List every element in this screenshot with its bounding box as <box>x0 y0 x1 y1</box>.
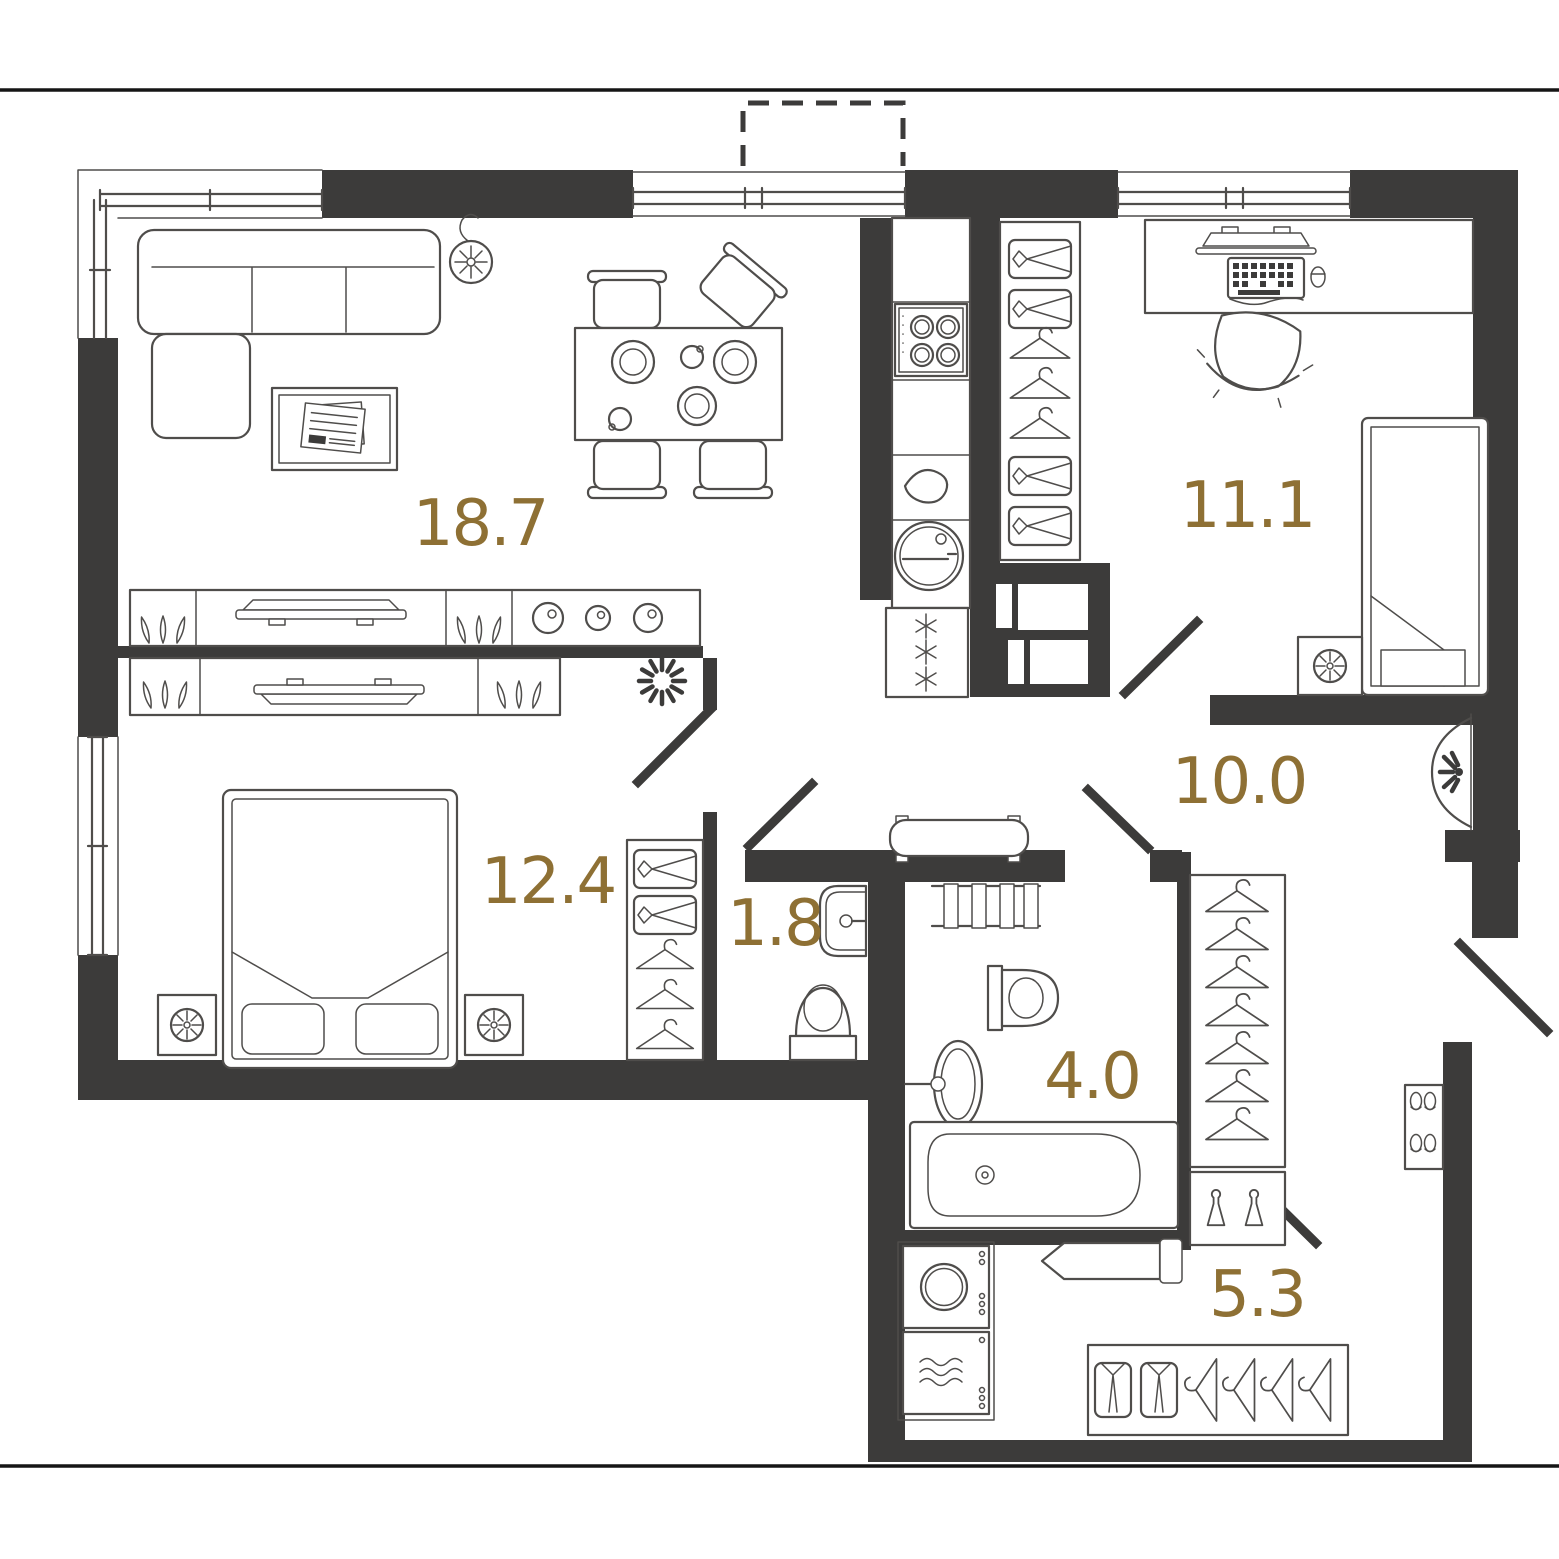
nightstand-fan-icon <box>1298 637 1362 695</box>
pendant-lamp-icon <box>450 214 492 283</box>
coat-closet-icon <box>1190 875 1285 1167</box>
wall-sink-icon <box>820 886 866 956</box>
bathtub-icon <box>910 1122 1178 1228</box>
office-door-leaf <box>1125 622 1197 693</box>
office-chair-icon <box>1190 304 1320 413</box>
room-label-bedroom: 12.4 <box>481 845 616 919</box>
room-label-wc: 1.8 <box>727 887 823 961</box>
closet-icon <box>1000 222 1080 560</box>
floor-plan-canvas: 18.7 11.1 10.0 12.4 1.8 4.0 5.3 <box>0 0 1559 1559</box>
plant-icon <box>639 658 685 704</box>
pedestal-sink-icon <box>905 1041 982 1127</box>
room-label-utility: 5.3 <box>1209 1258 1305 1332</box>
living-window <box>633 172 905 216</box>
bedroom-door-leaf <box>638 710 710 782</box>
room-label-hallway: 10.0 <box>1172 745 1307 819</box>
pillow-icon <box>356 1004 438 1054</box>
detergent-bottles-icon <box>1190 1172 1285 1245</box>
radiator-icon <box>890 816 1028 862</box>
fridge-icon <box>886 608 968 697</box>
dining-table-icon <box>575 241 789 498</box>
room-label-living: 18.7 <box>413 487 548 561</box>
toilet-icon <box>790 985 856 1060</box>
mouse-icon <box>1311 267 1325 287</box>
ironing-board-icon <box>1042 1239 1182 1283</box>
office-window <box>1118 172 1350 216</box>
living-room <box>130 214 789 646</box>
balcony-dashed-outline <box>743 103 903 166</box>
wardrobe-icon <box>627 840 703 1060</box>
kitchen <box>886 218 970 697</box>
towel-rail-icon <box>932 884 1040 928</box>
dryer-icon <box>903 1332 989 1414</box>
tv-console-living <box>130 590 700 646</box>
wc-door-leaf <box>749 784 812 846</box>
bedroom-window <box>78 737 118 955</box>
entrance-door-leaf <box>1460 944 1547 1031</box>
shoe-rack-icon <box>1405 1085 1443 1169</box>
pillow-icon <box>242 1004 324 1054</box>
washing-machine-icon <box>903 1246 989 1328</box>
console-sconce-icon <box>1432 714 1471 830</box>
toilet-icon <box>988 966 1058 1030</box>
newspaper-icon <box>301 396 369 453</box>
tv-console-bedroom <box>130 658 560 715</box>
room-label-bathroom: 4.0 <box>1044 1040 1140 1114</box>
double-bed-icon <box>223 790 457 1068</box>
shirt-wardrobe-icon <box>1088 1345 1348 1435</box>
desk-icon <box>1145 220 1473 313</box>
bath-lobby-door-leaf <box>1088 790 1148 848</box>
room-label-office: 11.1 <box>1180 469 1315 543</box>
single-bed-icon <box>1362 418 1488 695</box>
stove-icon <box>895 304 967 376</box>
keyboard-icon <box>1228 258 1304 304</box>
bedroom <box>130 658 703 1068</box>
coffee-table-icon <box>272 388 397 470</box>
